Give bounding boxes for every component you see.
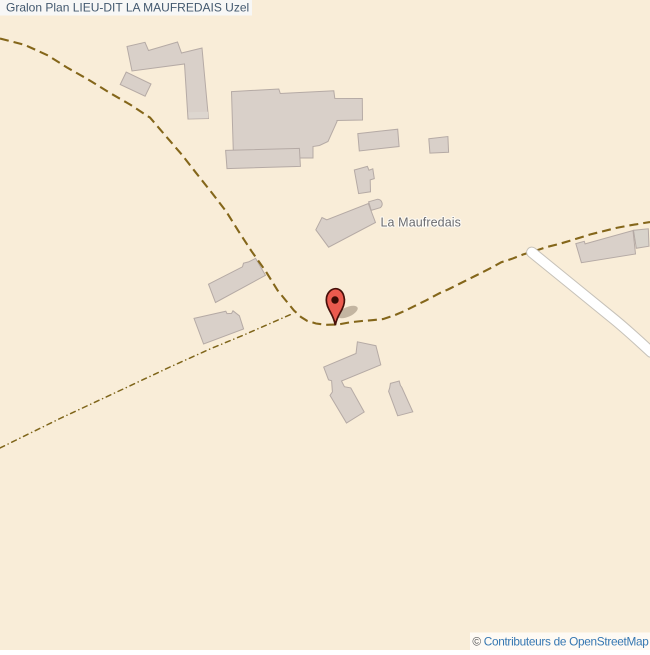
svg-text:© Contributeurs de OpenStreetM: © Contributeurs de OpenStreetMap bbox=[472, 635, 649, 649]
svg-text:Gralon Plan LIEU-DIT LA MAUFRE: Gralon Plan LIEU-DIT LA MAUFREDAIS Uzel bbox=[6, 1, 249, 15]
svg-text:La Maufredais: La Maufredais bbox=[381, 216, 462, 230]
